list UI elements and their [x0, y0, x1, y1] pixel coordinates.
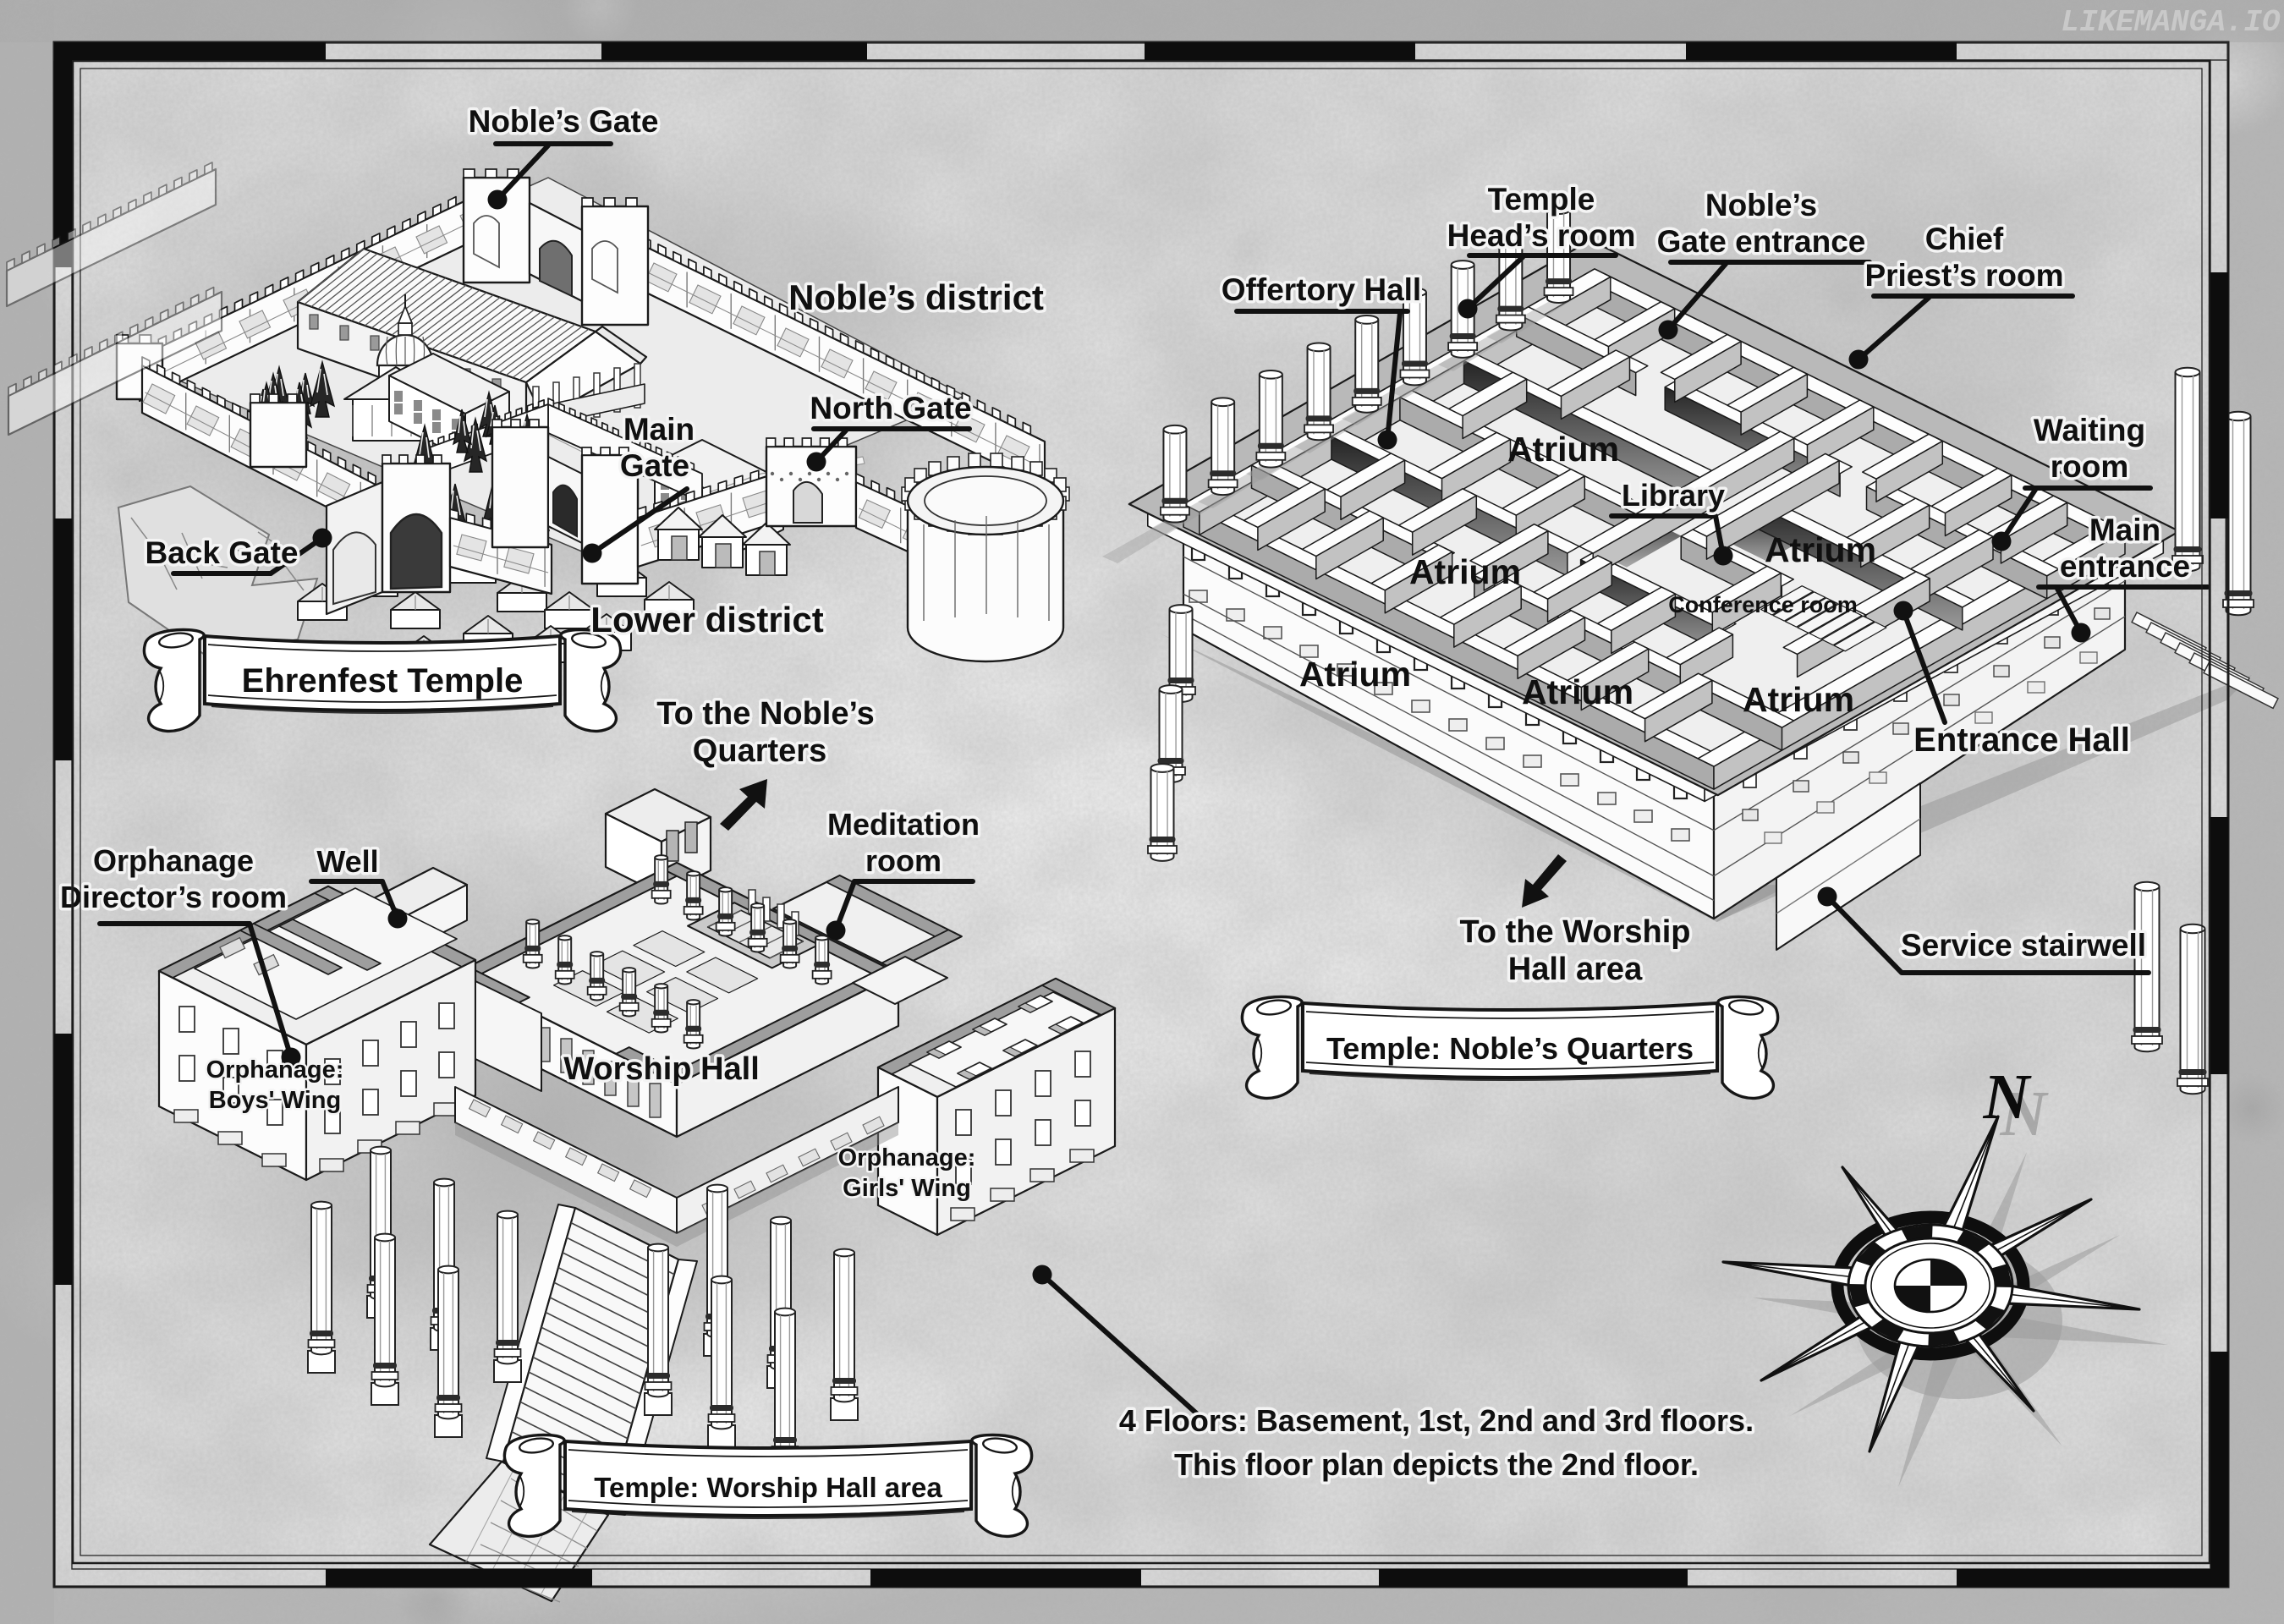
svg-text:Boys' Wing: Boys' Wing [209, 1087, 341, 1114]
svg-text:Temple: Noble’s Quarters: Temple: Noble’s Quarters [1326, 1031, 1694, 1066]
svg-text:N: N [1983, 1062, 2033, 1133]
svg-text:Main: Main [2089, 513, 2160, 547]
svg-text:Gate entrance: Gate entrance [1657, 224, 1866, 259]
svg-text:Priest’s room: Priest’s room [1864, 258, 2063, 293]
svg-text:Noble’s Gate: Noble’s Gate [469, 104, 659, 139]
svg-text:Well: Well [316, 844, 378, 879]
svg-text:Orphanage: Orphanage [93, 843, 254, 878]
svg-text:Atrium: Atrium [1522, 672, 1633, 711]
svg-text:Ehrenfest Temple: Ehrenfest Temple [242, 662, 524, 700]
svg-text:Head’s room: Head’s room [1447, 218, 1636, 253]
svg-text:Meditation: Meditation [827, 807, 980, 842]
svg-text:Main: Main [623, 412, 695, 447]
svg-text:Service stairwell: Service stairwell [1901, 928, 2146, 963]
svg-text:Entrance Hall: Entrance Hall [1913, 721, 2130, 759]
svg-text:This floor plan depicts the 2n: This floor plan depicts the 2nd floor. [1174, 1447, 1699, 1482]
svg-text:4 Floors: Basement, 1st, 2nd a: 4 Floors: Basement, 1st, 2nd and 3rd flo… [1119, 1403, 1754, 1438]
svg-text:To the Noble’s: To the Noble’s [656, 696, 875, 732]
svg-text:Atrium: Atrium [1299, 655, 1411, 694]
svg-text:To the Worship: To the Worship [1459, 914, 1690, 950]
svg-text:Atrium: Atrium [1743, 680, 1854, 719]
svg-text:Offertory Hall: Offertory Hall [1222, 272, 1421, 307]
svg-text:Temple: Worship Hall area: Temple: Worship Hall area [594, 1472, 942, 1503]
svg-text:Atrium: Atrium [1765, 530, 1876, 569]
svg-text:Gate: Gate [620, 448, 689, 483]
svg-text:Atrium: Atrium [1507, 430, 1619, 469]
svg-text:Temple: Temple [1488, 182, 1595, 217]
svg-text:room: room [2051, 449, 2129, 484]
svg-text:LIKEMANGA.IO: LIKEMANGA.IO [2061, 5, 2281, 40]
svg-text:Conference room: Conference room [1668, 592, 1858, 617]
svg-text:Girls' Wing: Girls' Wing [843, 1175, 971, 1202]
svg-text:Noble’s: Noble’s [1705, 188, 1817, 222]
svg-text:Orphanage:: Orphanage: [206, 1056, 344, 1084]
svg-text:Lower district: Lower district [590, 600, 823, 639]
svg-text:North Gate: North Gate [810, 391, 971, 425]
svg-text:Waiting: Waiting [2034, 413, 2145, 447]
svg-text:Back Gate: Back Gate [145, 535, 299, 570]
svg-text:Quarters: Quarters [693, 733, 826, 769]
svg-text:Atrium: Atrium [1409, 552, 1521, 591]
svg-text:Orphanage:: Orphanage: [838, 1144, 976, 1171]
svg-text:Library: Library [1622, 478, 1725, 513]
svg-text:entrance: entrance [2060, 549, 2190, 584]
svg-text:Noble’s district: Noble’s district [788, 277, 1044, 317]
svg-text:Chief: Chief [1925, 222, 2004, 256]
svg-text:Hall area: Hall area [1508, 952, 1643, 987]
svg-text:Worship Hall: Worship Hall [563, 1051, 760, 1087]
svg-text:Director’s room: Director’s room [60, 880, 287, 914]
svg-text:room: room [865, 843, 942, 878]
